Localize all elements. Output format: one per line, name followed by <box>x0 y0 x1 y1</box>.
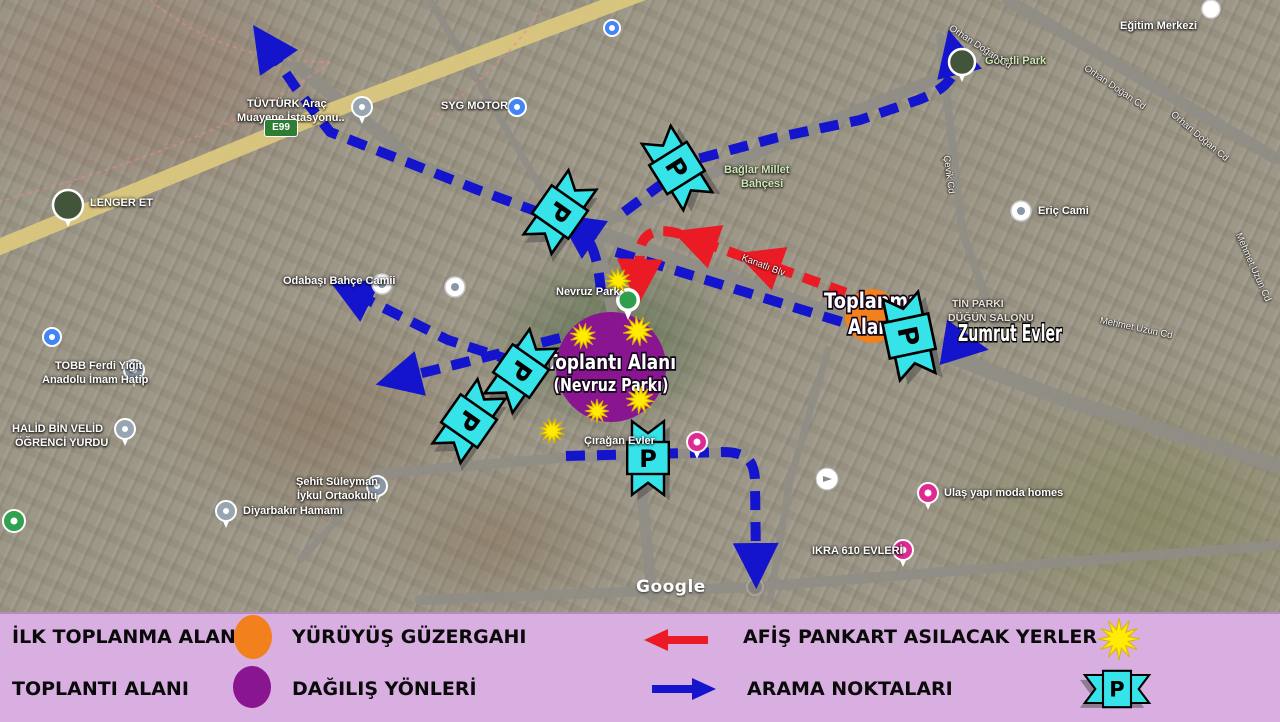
white-poi-icon[interactable] <box>1202 0 1220 18</box>
meeting-area-label-line2: (Nevruz Parkı) <box>554 375 669 396</box>
poi-label[interactable]: İykul Ortaokulu <box>297 490 377 503</box>
satellite-map[interactable]: Toplantı Alanı(Nevruz Parkı)ToplanmaAlan… <box>0 0 1280 612</box>
legend-label-first-gathering-area: İLK TOPLANMA ALANI <box>12 626 243 648</box>
google-watermark: Google <box>636 577 706 597</box>
poster-star-marker <box>539 418 564 443</box>
poi-label[interactable]: Eğitim Merkezi <box>1120 20 1197 33</box>
blue-poi-icon[interactable] <box>604 20 620 36</box>
orange-circle-icon <box>234 615 272 659</box>
legend-label-march-route: YÜRÜYÜŞ GÜZERGAHI <box>292 626 526 648</box>
roundabout <box>747 579 763 595</box>
p-banner-marker: P <box>1080 671 1149 708</box>
yellow-star-shape <box>1098 618 1140 660</box>
map-annotation-layer: Toplantı Alanı(Nevruz Parkı)ToplanmaAlan… <box>0 0 1280 612</box>
poi-label[interactable]: LENGER ET <box>90 197 153 210</box>
cyan-p-banner-icon: P <box>1072 662 1162 720</box>
road <box>378 452 744 474</box>
blue-poi-icon[interactable] <box>508 98 526 116</box>
poi-label[interactable]: Şehit Süleyman <box>296 476 378 489</box>
poi-label[interactable]: Diyarbakır Hamamı <box>243 505 343 518</box>
poi-label[interactable]: Eriç Cami <box>1038 205 1089 218</box>
poi-label[interactable]: Anadolu İmam Hatip <box>42 374 148 387</box>
poi-label[interactable]: Ulaş yapı moda homes <box>944 487 1063 500</box>
poi-label[interactable]: HALİD BİN VELİD <box>12 423 103 436</box>
red-arrow-left-icon <box>644 629 708 651</box>
gray-poi-icon[interactable] <box>216 501 236 528</box>
mosque-poi-icon[interactable] <box>1011 201 1031 221</box>
poi-label[interactable]: TOBB Ferdi Yiğit <box>55 360 142 373</box>
highway-badge-e99: E99 <box>264 119 298 137</box>
poi-label[interactable]: Çırağan Evler <box>584 435 655 448</box>
gray-poi-icon[interactable] <box>115 419 135 446</box>
poi-label[interactable]: Odabaşı Bahçe Camii <box>283 275 396 288</box>
poi-label[interactable]: TİN PARKI <box>952 298 1004 311</box>
poi-label[interactable]: Nevruz Park <box>556 286 620 299</box>
march-route-arrow <box>694 239 744 257</box>
p-banner-marker: P <box>878 290 943 387</box>
legend-label-meeting-area: TOPLANTI ALANI <box>12 678 189 700</box>
legend-label-dispersal-directions: DAĞILIŞ YÖNLERİ <box>292 678 477 700</box>
poi-label[interactable]: SYG MOTOR <box>441 100 508 113</box>
legend-label-search-points: ARAMA NOKTALARI <box>747 678 953 700</box>
yellow-star-icon <box>1096 616 1142 662</box>
p-banner-marker: P <box>627 421 669 500</box>
sv-poi-icon[interactable] <box>816 468 838 490</box>
poi-label[interactable]: IKRA 610 EVLERİ <box>812 545 903 558</box>
purple-circle-icon <box>233 666 271 708</box>
mosque-poi-icon[interactable] <box>445 277 465 297</box>
greenround-poi-icon[interactable] <box>3 510 25 532</box>
p-letter: P <box>1109 678 1124 702</box>
poi-label[interactable]: ÖĞRENCİ YURDU <box>15 437 108 450</box>
blue-poi-icon[interactable] <box>43 328 61 346</box>
poi-label[interactable]: Bağlar Millet <box>724 164 789 177</box>
poi-label[interactable]: TÜVTÜRK Araç <box>247 98 327 111</box>
poi-label[interactable]: Bahçesi <box>741 178 783 191</box>
legend-label-banner-places: AFİŞ PANKART ASILACAK YERLER <box>743 626 1097 648</box>
pink-poi-icon[interactable] <box>918 483 938 510</box>
poi-label[interactable]: DÜĞÜN SALONU <box>948 312 1034 325</box>
blue-arrow-right-icon <box>652 678 716 700</box>
minor-road-line <box>150 0 330 62</box>
p-letter: P <box>639 445 657 473</box>
meeting-area-label-line1: Toplantı Alanı <box>546 350 676 374</box>
legend: İLK TOPLANMA ALANI YÜRÜYÜŞ GÜZERGAHI AFİ… <box>0 612 1280 722</box>
